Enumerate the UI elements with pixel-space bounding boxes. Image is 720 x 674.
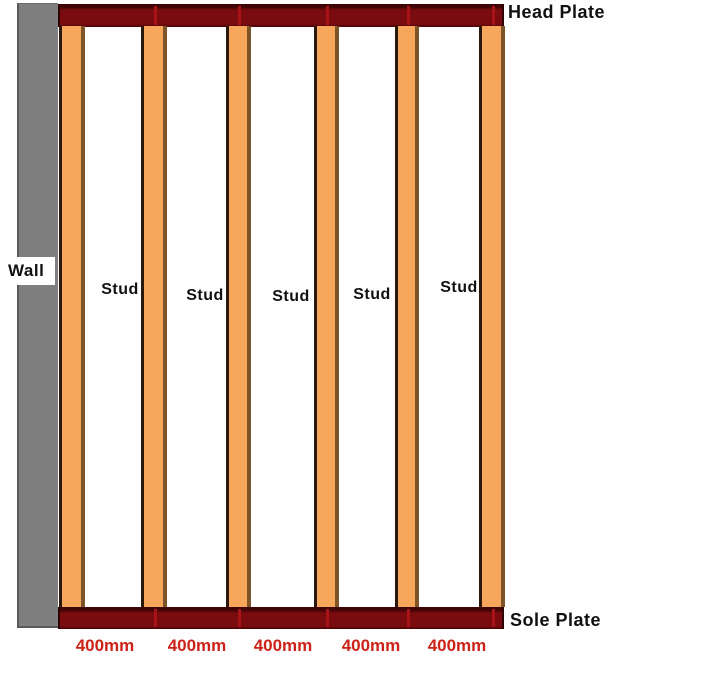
sole-plate-seam <box>407 609 410 627</box>
head-plate-seam <box>492 6 495 25</box>
stud-bar <box>226 26 251 607</box>
head-plate-bar <box>58 4 504 27</box>
head-plate-seam <box>154 6 157 25</box>
stud-label: Stud <box>440 279 478 297</box>
sole-plate-bar <box>58 607 504 629</box>
sole-plate-seam <box>154 609 157 627</box>
stud-bar <box>141 26 167 607</box>
sole-plate-seam <box>492 609 495 627</box>
dimension-label: 400mm <box>168 636 227 656</box>
dimension-label: 400mm <box>342 636 401 656</box>
dimension-label: 400mm <box>428 636 487 656</box>
sole-plate-seam <box>238 609 241 627</box>
stud-label: Stud <box>272 288 310 306</box>
head-plate-seam <box>238 6 241 25</box>
stud-bar <box>479 26 505 607</box>
stud-label: Stud <box>101 281 139 299</box>
stud-bar <box>59 26 85 607</box>
stud-bar <box>314 26 339 607</box>
stud-label: Stud <box>353 286 391 304</box>
stud-label: Stud <box>186 287 224 305</box>
wall-framing-diagram: Wall Stud Stud Stud Stud Stud Head Plate… <box>0 0 720 674</box>
wall-label: Wall <box>3 257 55 285</box>
dimension-label: 400mm <box>76 636 135 656</box>
head-plate-seam <box>326 6 329 25</box>
sole-plate-seam <box>326 609 329 627</box>
head-plate-label: Head Plate <box>508 2 605 23</box>
dimension-label: 400mm <box>254 636 313 656</box>
stud-bar <box>395 26 419 607</box>
wall-bar <box>17 3 58 628</box>
head-plate-seam <box>407 6 410 25</box>
sole-plate-label: Sole Plate <box>510 610 601 631</box>
